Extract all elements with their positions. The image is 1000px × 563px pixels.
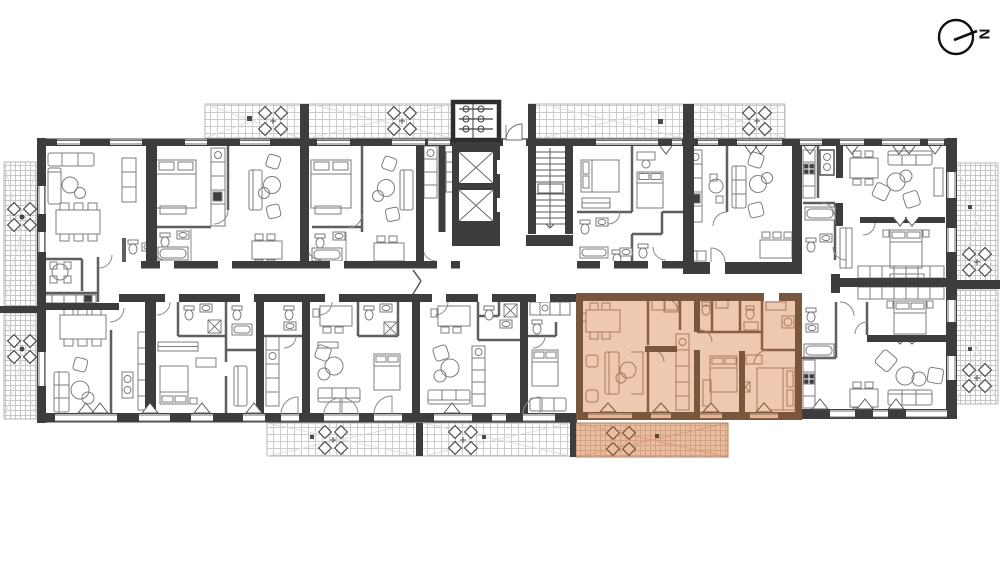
svg-text:N: N [976,29,993,40]
